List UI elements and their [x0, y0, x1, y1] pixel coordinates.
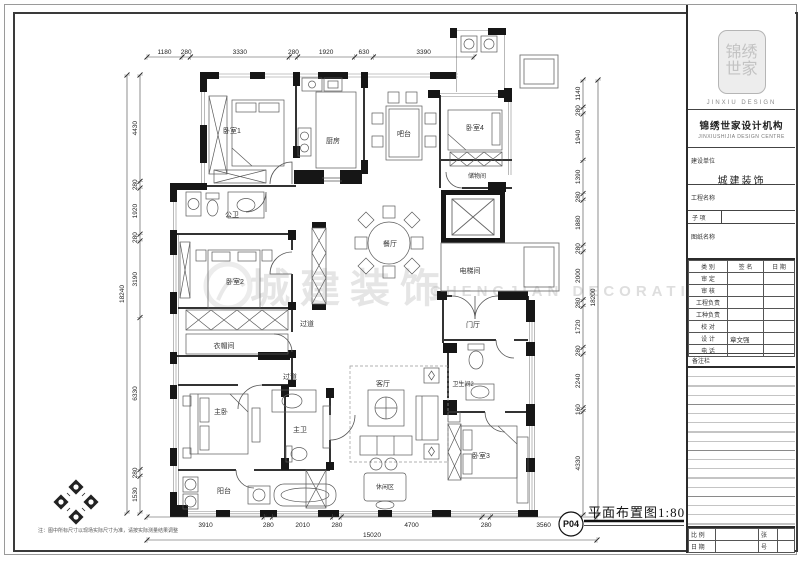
company-seal-logo: 锦绣世家 [718, 30, 766, 94]
title-block: 锦绣世家 JINXIU DESIGN 锦绣世家设计机构 JINXIUSHIJIA… [686, 5, 795, 553]
svg-text:3190: 3190 [132, 272, 139, 287]
signature-row-date [764, 321, 795, 333]
organization-name-en: JINXIUSHIJIA DESIGN CENTRE [698, 134, 785, 140]
svg-text:15020: 15020 [363, 532, 381, 539]
svg-text:1180: 1180 [158, 49, 172, 56]
signature-row-date [764, 297, 795, 309]
svg-text:1940: 1940 [575, 130, 582, 145]
signature-row: 校 对 [689, 321, 795, 333]
drawing-name-box: 图纸名称 [688, 224, 795, 260]
logo-caption: JINXIU DESIGN [707, 100, 777, 106]
signature-row: 设 计 章文强 [689, 333, 795, 345]
room-label-balcony: 阳台 [217, 486, 231, 495]
svg-text:3560: 3560 [536, 522, 551, 529]
drawing-number: P04 [563, 519, 579, 529]
svg-text:3330: 3330 [233, 49, 248, 56]
room-label-elevator: 电梯间 [460, 266, 481, 275]
svg-text:280: 280 [132, 467, 139, 478]
drawing-sheet: 城建装饰 CHENGJIAN DECORATION [0, 0, 800, 562]
remarks-box: 备注栏 [688, 354, 795, 528]
svg-text:1140: 1140 [575, 86, 582, 100]
signature-row-label: 审 定 [689, 273, 728, 285]
room-label-kitchen: 厨房 [326, 136, 340, 145]
signature-row-value: 章文强 [728, 333, 764, 345]
svg-text:18200: 18200 [590, 288, 597, 306]
signature-row: 审 核 [689, 285, 795, 297]
svg-text:630: 630 [359, 49, 370, 56]
svg-text:280: 280 [575, 105, 582, 116]
signature-row-date [764, 273, 795, 285]
svg-text:280: 280 [132, 232, 139, 243]
drawing-name-label: 图纸名称 [691, 235, 715, 241]
room-label-leisure: 休闲区 [376, 483, 394, 491]
organization-name-cn: 锦绣世家设计机构 [699, 118, 783, 132]
room-label-bar: 吧台 [397, 129, 411, 138]
room-label-bathroom2: 卫生间2 [452, 380, 474, 388]
svg-text:1530: 1530 [132, 487, 139, 502]
watermark: 城建装饰 CHENGJIAN DECORATION [206, 264, 685, 311]
signature-row-value [728, 285, 764, 297]
scale-date-box: 比 例 张 日 期 号 [688, 528, 795, 553]
svg-text:1390: 1390 [575, 169, 582, 184]
svg-text:1880: 1880 [575, 215, 582, 230]
subitem-label: 子 项 [688, 211, 722, 223]
signature-table: 类 别 签 名 日 期 审 定 审 [688, 260, 795, 354]
svg-text:160: 160 [575, 404, 582, 415]
watermark-en: CHENGJIAN DECORATION [430, 283, 685, 300]
signature-row-value [728, 321, 764, 333]
svg-text:280: 280 [132, 179, 139, 190]
svg-text:1920: 1920 [319, 49, 334, 56]
subitem-row: 子 项 [688, 211, 795, 224]
svg-text:1720: 1720 [575, 319, 582, 334]
svg-text:280: 280 [575, 345, 582, 356]
organization-box: 锦绣世家设计机构 JINXIUSHIJIA DESIGN CENTRE [688, 110, 795, 148]
svg-text:4330: 4330 [575, 456, 582, 471]
signature-row-label: 工种负责 [689, 309, 728, 321]
scale-value [716, 529, 759, 541]
project-name-box: 工程名称 [688, 185, 795, 211]
svg-text:2240: 2240 [575, 373, 582, 388]
north-compass-icon [54, 480, 98, 524]
room-label-master-bath: 主卫 [293, 425, 307, 434]
signature-row-date [764, 285, 795, 297]
svg-text:4700: 4700 [404, 522, 419, 529]
project-name-label: 工程名称 [691, 196, 715, 202]
room-label-master-bedroom: 主卧 [214, 407, 228, 416]
title-block-logo: 锦绣世家 JINXIU DESIGN [688, 5, 795, 110]
svg-text:2010: 2010 [295, 522, 310, 529]
remarks-lines [688, 368, 795, 526]
signature-row: 工程负责 [689, 297, 795, 309]
room-label-bedroom3: 卧室3 [472, 451, 490, 460]
drawing-title: 平面布置图1:80 [588, 505, 685, 520]
floor-plan: 城建装饰 CHENGJIAN DECORATION [14, 13, 685, 547]
sheet-label: 张 [759, 529, 778, 541]
svg-text:280: 280 [575, 243, 582, 254]
svg-text:280: 280 [288, 49, 299, 56]
svg-text:2000: 2000 [575, 268, 582, 283]
client-box: 建设单位 城建装饰 [688, 148, 795, 185]
room-label-storage: 储物间 [468, 172, 486, 180]
drawing-title-stamp: P04 平面布置图1:80 [559, 505, 685, 536]
signature-row-label: 工程负责 [689, 297, 728, 309]
signature-row-value [728, 297, 764, 309]
sign-header-date: 日 期 [764, 261, 795, 273]
svg-text:4430: 4430 [132, 121, 139, 136]
svg-text:280: 280 [263, 522, 274, 529]
signature-row-label: 审 核 [689, 285, 728, 297]
room-label-bedroom2: 卧室2 [226, 277, 244, 286]
client-label: 建设单位 [691, 159, 715, 165]
signature-row-label: 设 计 [689, 333, 728, 345]
svg-text:280: 280 [181, 49, 192, 56]
room-label-public-bath: 公卫 [225, 211, 239, 219]
sheet-value [778, 529, 795, 541]
svg-text:280: 280 [575, 191, 582, 202]
sheet-note: 注：图中所标尺寸以现场实际尺寸为准，请按实际测量结果调整 [38, 527, 178, 534]
svg-text:280: 280 [575, 297, 582, 308]
number-label: 号 [759, 541, 778, 553]
room-label-bedroom1: 卧室1 [223, 126, 241, 135]
signature-row: 审 定 [689, 273, 795, 285]
room-label-living: 客厅 [376, 379, 390, 388]
date-label: 日 期 [689, 541, 716, 553]
svg-text:6330: 6330 [132, 386, 139, 401]
room-label-cloakroom: 衣帽间 [214, 341, 235, 350]
signature-row-value [728, 309, 764, 321]
signature-row-date [764, 309, 795, 321]
room-label-dining: 餐厅 [383, 239, 397, 248]
svg-text:18240: 18240 [119, 285, 126, 303]
signature-row: 工种负责 [689, 309, 795, 321]
scale-label: 比 例 [689, 529, 716, 541]
remarks-label: 备注栏 [688, 354, 795, 368]
signature-row-label: 校 对 [689, 321, 728, 333]
date-value [716, 541, 759, 553]
sign-header-category: 类 别 [689, 261, 728, 273]
seal-text: 锦绣世家 [722, 45, 762, 79]
room-label-corridor1: 过道 [300, 319, 314, 328]
signature-row-value [728, 273, 764, 285]
number-value [778, 541, 795, 553]
room-label-foyer: 门厅 [466, 320, 480, 329]
svg-text:280: 280 [332, 522, 343, 529]
svg-text:3390: 3390 [416, 49, 431, 56]
room-label-bedroom4: 卧室4 [466, 123, 484, 132]
svg-text:3910: 3910 [198, 522, 213, 529]
signature-row-date [764, 333, 795, 345]
sign-header-signature: 签 名 [728, 261, 764, 273]
svg-text:1920: 1920 [132, 204, 139, 219]
room-label-corridor2: 过道 [283, 372, 297, 381]
svg-text:280: 280 [481, 522, 492, 529]
